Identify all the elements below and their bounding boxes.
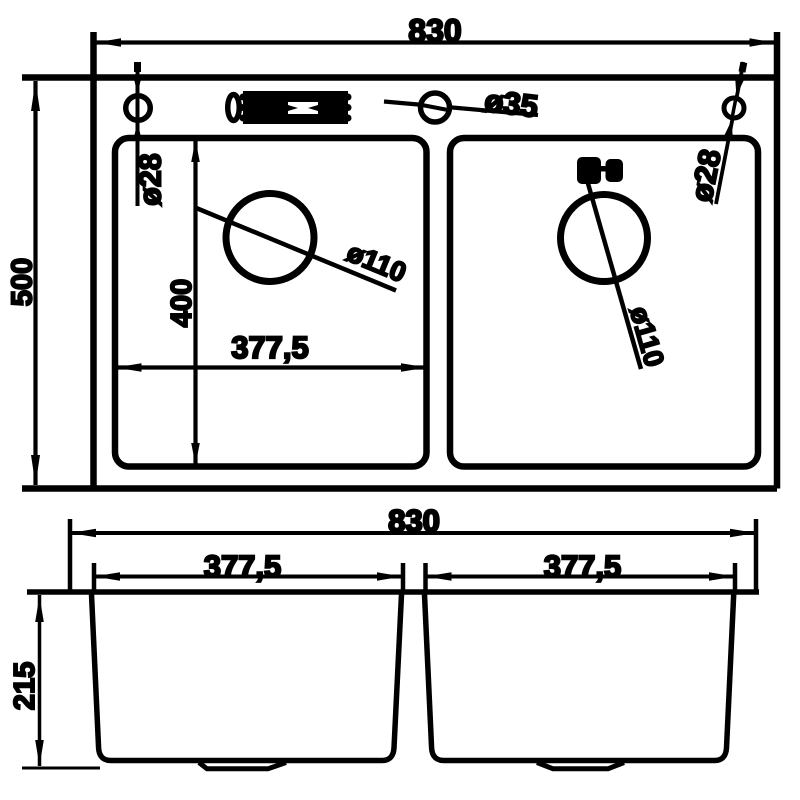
- svg-text:830: 830: [408, 13, 461, 49]
- svg-text:400: 400: [166, 279, 198, 327]
- svg-text:377,5: 377,5: [544, 549, 622, 584]
- svg-text:377,5: 377,5: [204, 549, 282, 584]
- svg-text:830: 830: [388, 504, 440, 539]
- svg-text:215: 215: [9, 662, 41, 710]
- svg-text:ø28: ø28: [134, 153, 168, 206]
- svg-text:ø35: ø35: [483, 83, 540, 124]
- svg-text:500: 500: [7, 258, 39, 306]
- svg-text:377,5: 377,5: [231, 330, 309, 365]
